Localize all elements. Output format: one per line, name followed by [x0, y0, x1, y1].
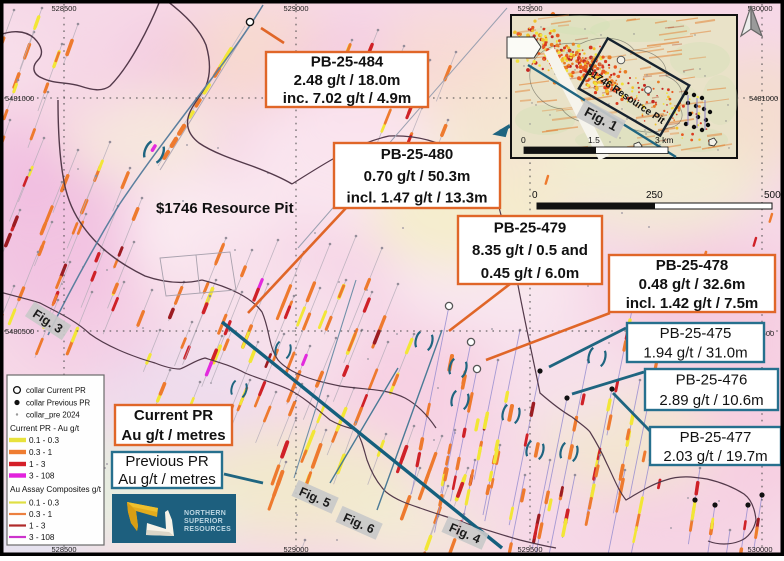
svg-text:NORTHERN: NORTHERN — [184, 510, 226, 517]
svg-text:collar Current PR: collar Current PR — [26, 386, 86, 395]
svg-text:5480500: 5480500 — [5, 327, 34, 336]
svg-text:3 - 108: 3 - 108 — [29, 472, 55, 481]
svg-text:2.89 g/t / 10.6m: 2.89 g/t / 10.6m — [659, 392, 763, 409]
svg-text:2.03 g/t / 19.7m: 2.03 g/t / 19.7m — [663, 448, 767, 465]
svg-text:incl. 1.47 g/t / 13.3m: incl. 1.47 g/t / 13.3m — [347, 189, 488, 206]
svg-text:528500: 528500 — [51, 4, 76, 13]
svg-text:Au g/t / metres: Au g/t / metres — [121, 427, 225, 444]
svg-text:PB-25-484: PB-25-484 — [311, 53, 384, 70]
svg-text:3 - 108: 3 - 108 — [29, 533, 55, 542]
svg-text:PB-25-478: PB-25-478 — [656, 257, 729, 274]
svg-text:8.35 g/t / 0.5 and: 8.35 g/t / 0.5 and — [472, 242, 588, 259]
svg-text:250: 250 — [646, 190, 663, 201]
svg-text:PB-25-477: PB-25-477 — [680, 429, 752, 446]
svg-text:5481000: 5481000 — [5, 94, 34, 103]
svg-text:RESOURCES: RESOURCES — [184, 526, 231, 533]
svg-text:PB-25-480: PB-25-480 — [381, 146, 454, 163]
svg-text:1 - 3: 1 - 3 — [29, 522, 46, 531]
svg-text:2.48 g/t / 18.0m: 2.48 g/t / 18.0m — [294, 72, 401, 89]
svg-text:PB-25-476: PB-25-476 — [676, 372, 748, 389]
svg-text:0.70 g/t / 50.3m: 0.70 g/t / 50.3m — [364, 168, 471, 185]
svg-text:529000: 529000 — [283, 4, 308, 13]
svg-text:1 - 3: 1 - 3 — [29, 460, 46, 469]
svg-text:PB-25-479: PB-25-479 — [494, 220, 567, 237]
svg-text:0.3 - 1: 0.3 - 1 — [29, 448, 53, 457]
svg-text:Current PR - Au g/t: Current PR - Au g/t — [10, 424, 80, 433]
svg-text:PB-25-475: PB-25-475 — [660, 325, 732, 342]
svg-text:5481000: 5481000 — [749, 94, 778, 103]
svg-text:0.3 - 1: 0.3 - 1 — [29, 510, 53, 519]
svg-text:$1746 Resource Pit: $1746 Resource Pit — [156, 200, 294, 217]
svg-text:1.5: 1.5 — [588, 135, 600, 145]
svg-text:Au g/t / metres: Au g/t / metres — [118, 471, 216, 488]
svg-text:0: 0 — [521, 135, 526, 145]
svg-text:3 km: 3 km — [655, 135, 673, 145]
svg-text:Previous PR: Previous PR — [125, 453, 209, 470]
svg-text:0.48 g/t / 32.6m: 0.48 g/t / 32.6m — [639, 276, 746, 293]
svg-text:0.1 - 0.3: 0.1 - 0.3 — [29, 436, 59, 445]
svg-text:SUPERIOR: SUPERIOR — [184, 518, 223, 525]
svg-text:1.94 g/t / 31.0m: 1.94 g/t / 31.0m — [643, 345, 747, 362]
svg-text:collar_pre 2024: collar_pre 2024 — [26, 411, 80, 420]
svg-text:incl. 1.42 g/t / 7.5m: incl. 1.42 g/t / 7.5m — [626, 295, 759, 312]
svg-text:Current PR: Current PR — [134, 407, 213, 424]
svg-text:0.45 g/t / 6.0m: 0.45 g/t / 6.0m — [481, 265, 579, 282]
svg-text:Au Assay Composites g/t: Au Assay Composites g/t — [10, 485, 102, 494]
svg-text:0: 0 — [532, 190, 538, 201]
svg-text:inc. 7.02 g/t / 4.9m: inc. 7.02 g/t / 4.9m — [283, 90, 411, 107]
svg-text:529500: 529500 — [517, 4, 542, 13]
svg-text:0.1 - 0.3: 0.1 - 0.3 — [29, 499, 59, 508]
svg-text:collar Previous PR: collar Previous PR — [26, 399, 90, 408]
